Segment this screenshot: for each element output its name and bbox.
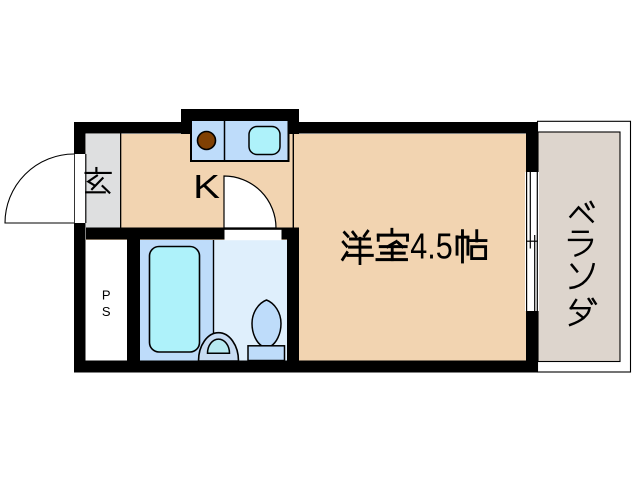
svg-text:S: S [102, 304, 111, 319]
svg-text:K: K [193, 169, 220, 206]
svg-text:P: P [102, 287, 111, 302]
svg-text:4.5: 4.5 [410, 227, 453, 267]
